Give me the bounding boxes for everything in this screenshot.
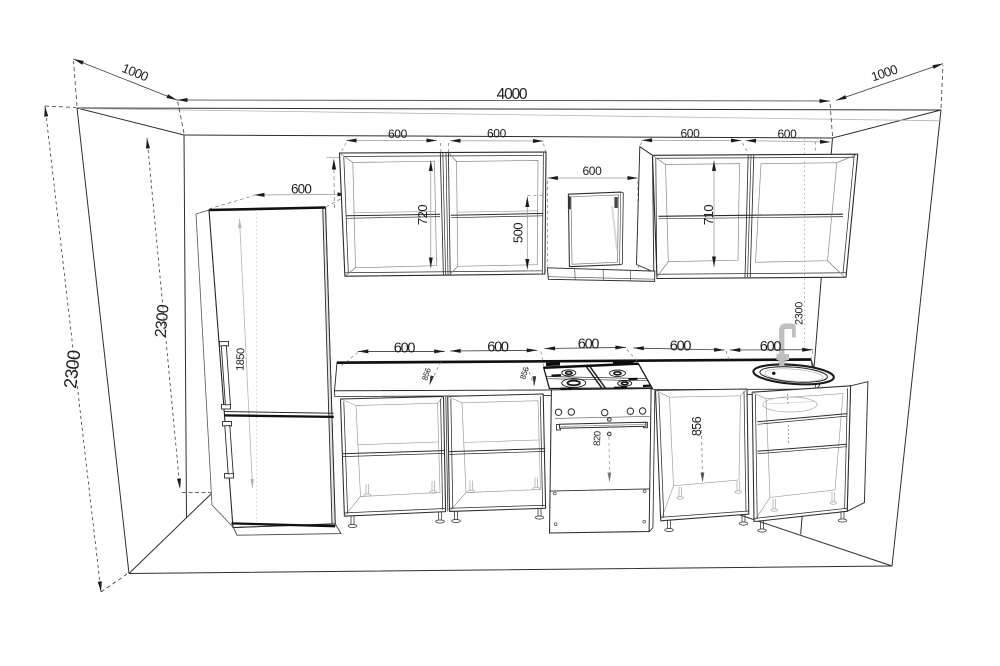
svg-text:600: 600 [487,339,509,355]
svg-text:600: 600 [582,164,602,178]
svg-text:820: 820 [592,431,604,446]
svg-text:600: 600 [680,127,700,141]
svg-text:710: 710 [701,205,716,225]
svg-text:600: 600 [388,127,408,141]
svg-text:2300: 2300 [794,302,806,325]
svg-text:600: 600 [670,338,692,354]
svg-text:1850: 1850 [235,348,248,371]
svg-text:600: 600 [760,339,782,355]
svg-text:2300: 2300 [153,304,173,339]
svg-text:600: 600 [777,127,797,141]
svg-text:856: 856 [690,416,704,436]
svg-text:600: 600 [578,337,600,353]
svg-text:720: 720 [415,205,430,225]
svg-text:600: 600 [394,341,416,357]
svg-text:600: 600 [291,181,311,196]
svg-text:4000: 4000 [497,86,528,103]
svg-text:500: 500 [511,223,526,243]
svg-text:600: 600 [487,127,507,141]
